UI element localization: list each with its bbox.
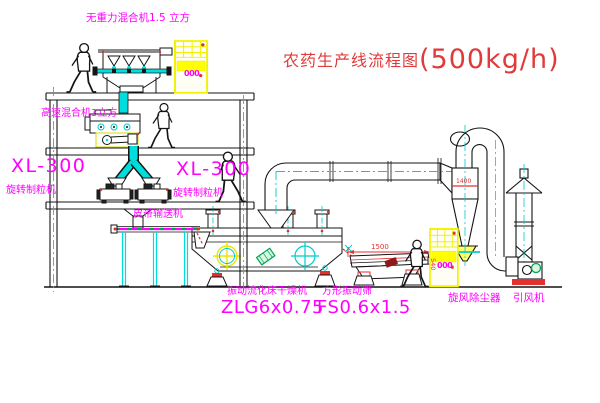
flow-diagram-canvas: 农药生产线流程图 (500kg/h) 无重力混合机1.5 立方 高速混合机3立方…	[0, 0, 600, 403]
gravity-mixer-machine	[93, 48, 172, 113]
label-granulator-left-name: 旋转制粒机	[6, 186, 56, 196]
belt-conveyor	[111, 225, 203, 286]
label-belt-conveyor: 皮带输送机	[133, 210, 183, 220]
diagram-title: 农药生产线流程图 (500kg/h)	[283, 44, 560, 75]
dim-screen-length: 1500	[371, 244, 389, 251]
y-chute	[108, 146, 160, 186]
label-dryer-model: ZLG6x0.75	[221, 299, 324, 317]
induced-draft-fan	[506, 257, 545, 285]
dim-cyclone: 1400	[456, 179, 471, 185]
cabinet-display-right: 000	[437, 262, 452, 270]
granulator-left	[97, 184, 133, 203]
person-figure	[148, 104, 175, 148]
label-high-speed-mixer: 高速混合机3立方	[41, 109, 117, 119]
exhaust-duct	[265, 158, 452, 214]
fluid-bed-dryer	[192, 206, 354, 286]
label-gravity-mixer: 无重力混合机1.5 立方	[86, 13, 190, 24]
title-capacity: (500kg/h)	[419, 44, 560, 75]
label-screen-name: 方形振动筛	[322, 287, 372, 297]
label-granulator-right-name: 旋转制粒机	[173, 189, 223, 199]
title-text: 农药生产线流程图	[283, 47, 419, 75]
label-granulator-right-model: XL-300	[176, 160, 251, 179]
label-screen-model: FS0.6x1.5	[317, 299, 411, 317]
dim-screen-height: 540	[430, 258, 437, 270]
control-cabinet-top	[175, 41, 207, 93]
label-fan: 引风机	[513, 293, 545, 304]
vibrating-screen	[348, 247, 440, 285]
label-cyclone: 旋风除尘器	[448, 293, 501, 304]
cabinet-display-top: 000	[184, 70, 199, 78]
label-dryer-name: 振动流化床干燥机	[227, 287, 307, 297]
person-figure	[67, 44, 97, 92]
granulator-right	[135, 184, 171, 203]
label-granulator-left-model: XL-300	[11, 157, 86, 176]
